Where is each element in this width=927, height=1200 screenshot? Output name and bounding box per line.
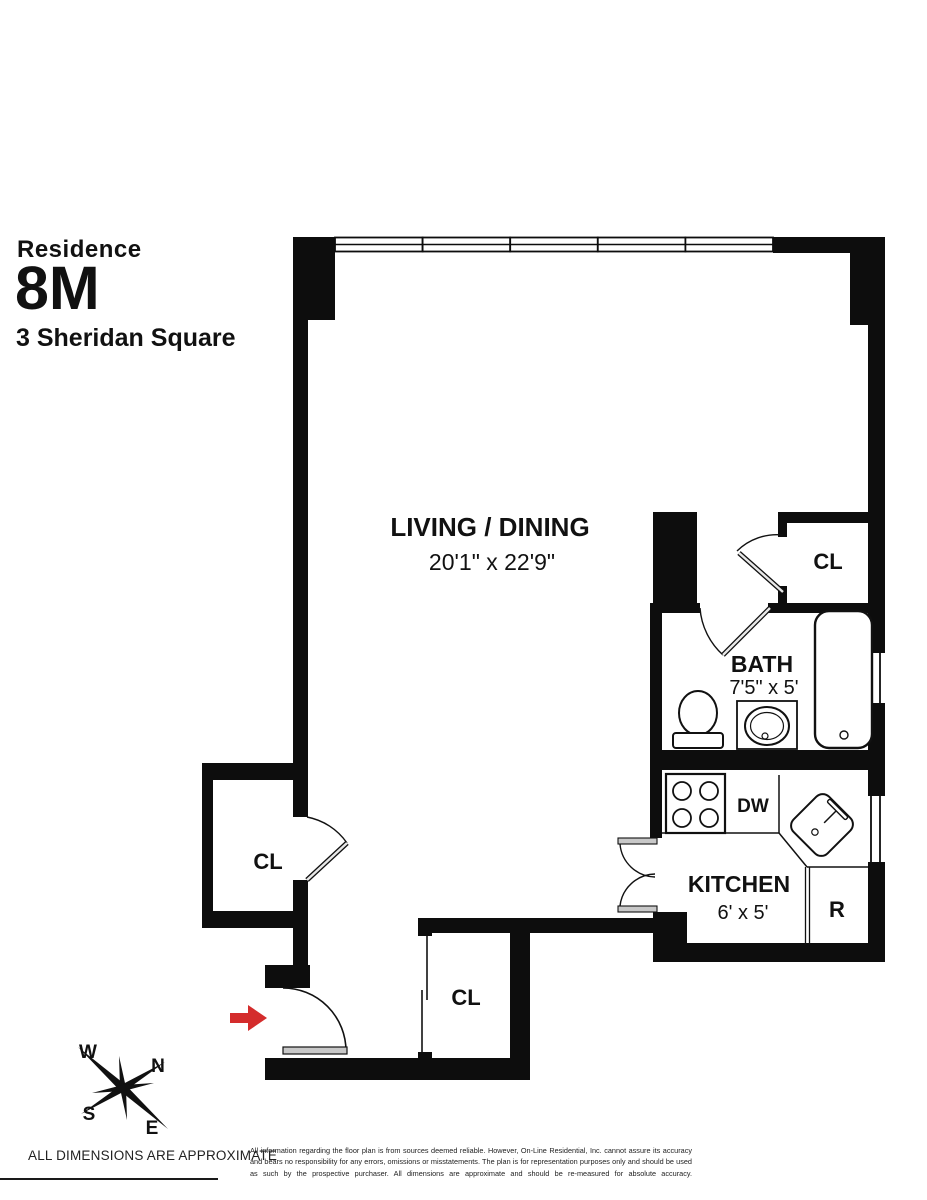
- compass-south: S: [83, 1104, 96, 1125]
- toilet-icon: [673, 691, 723, 748]
- disclaimer-text: All information regarding the floor plan…: [250, 1145, 692, 1179]
- bath-dims: 7'5" x 5': [729, 677, 798, 699]
- kitchen-double-door: [618, 838, 657, 912]
- bath-door: [700, 608, 770, 655]
- compass-north: N: [151, 1056, 165, 1077]
- closet-label-top-right: CL: [813, 549, 842, 574]
- bath-label: BATH: [731, 651, 793, 677]
- stove-icon: [666, 774, 725, 833]
- kitchen-sink-icon: [787, 790, 856, 859]
- compass-east: E: [146, 1118, 159, 1139]
- entry-door: [283, 988, 347, 1054]
- bathtub-icon: [815, 611, 872, 748]
- window-band-top: [335, 237, 773, 254]
- closet-label-bottom: CL: [451, 985, 480, 1010]
- window-kitchen: [866, 796, 887, 862]
- compass-west: W: [79, 1042, 97, 1063]
- dishwasher-label: DW: [737, 796, 769, 817]
- refrigerator-label: R: [829, 897, 845, 922]
- kitchen-label: KITCHEN: [688, 871, 790, 897]
- closet-door-top-right: [737, 535, 783, 592]
- living-room-dims: 20'1" x 22'9": [429, 549, 555, 575]
- refrigerator-icon: [806, 867, 810, 945]
- living-room-label: LIVING / DINING: [390, 512, 589, 542]
- closet-label-left: CL: [253, 849, 282, 874]
- dimensions-note: ALL DIMENSIONS ARE APPROXIMATE: [28, 1148, 277, 1163]
- floorplan-drawing: W N S E LIVING / DINING 20'1" x 22'9" BA…: [0, 0, 927, 1200]
- entry-arrow-icon: [230, 1005, 267, 1031]
- kitchen-dims: 6' x 5': [718, 902, 769, 924]
- floorplan-page: Residence 8M 3 Sheridan Square: [0, 0, 927, 1200]
- bath-sink-icon: [737, 701, 797, 749]
- left-closet-door: [307, 817, 347, 880]
- footer-rule: [0, 1178, 218, 1180]
- sliding-door: [422, 936, 427, 1052]
